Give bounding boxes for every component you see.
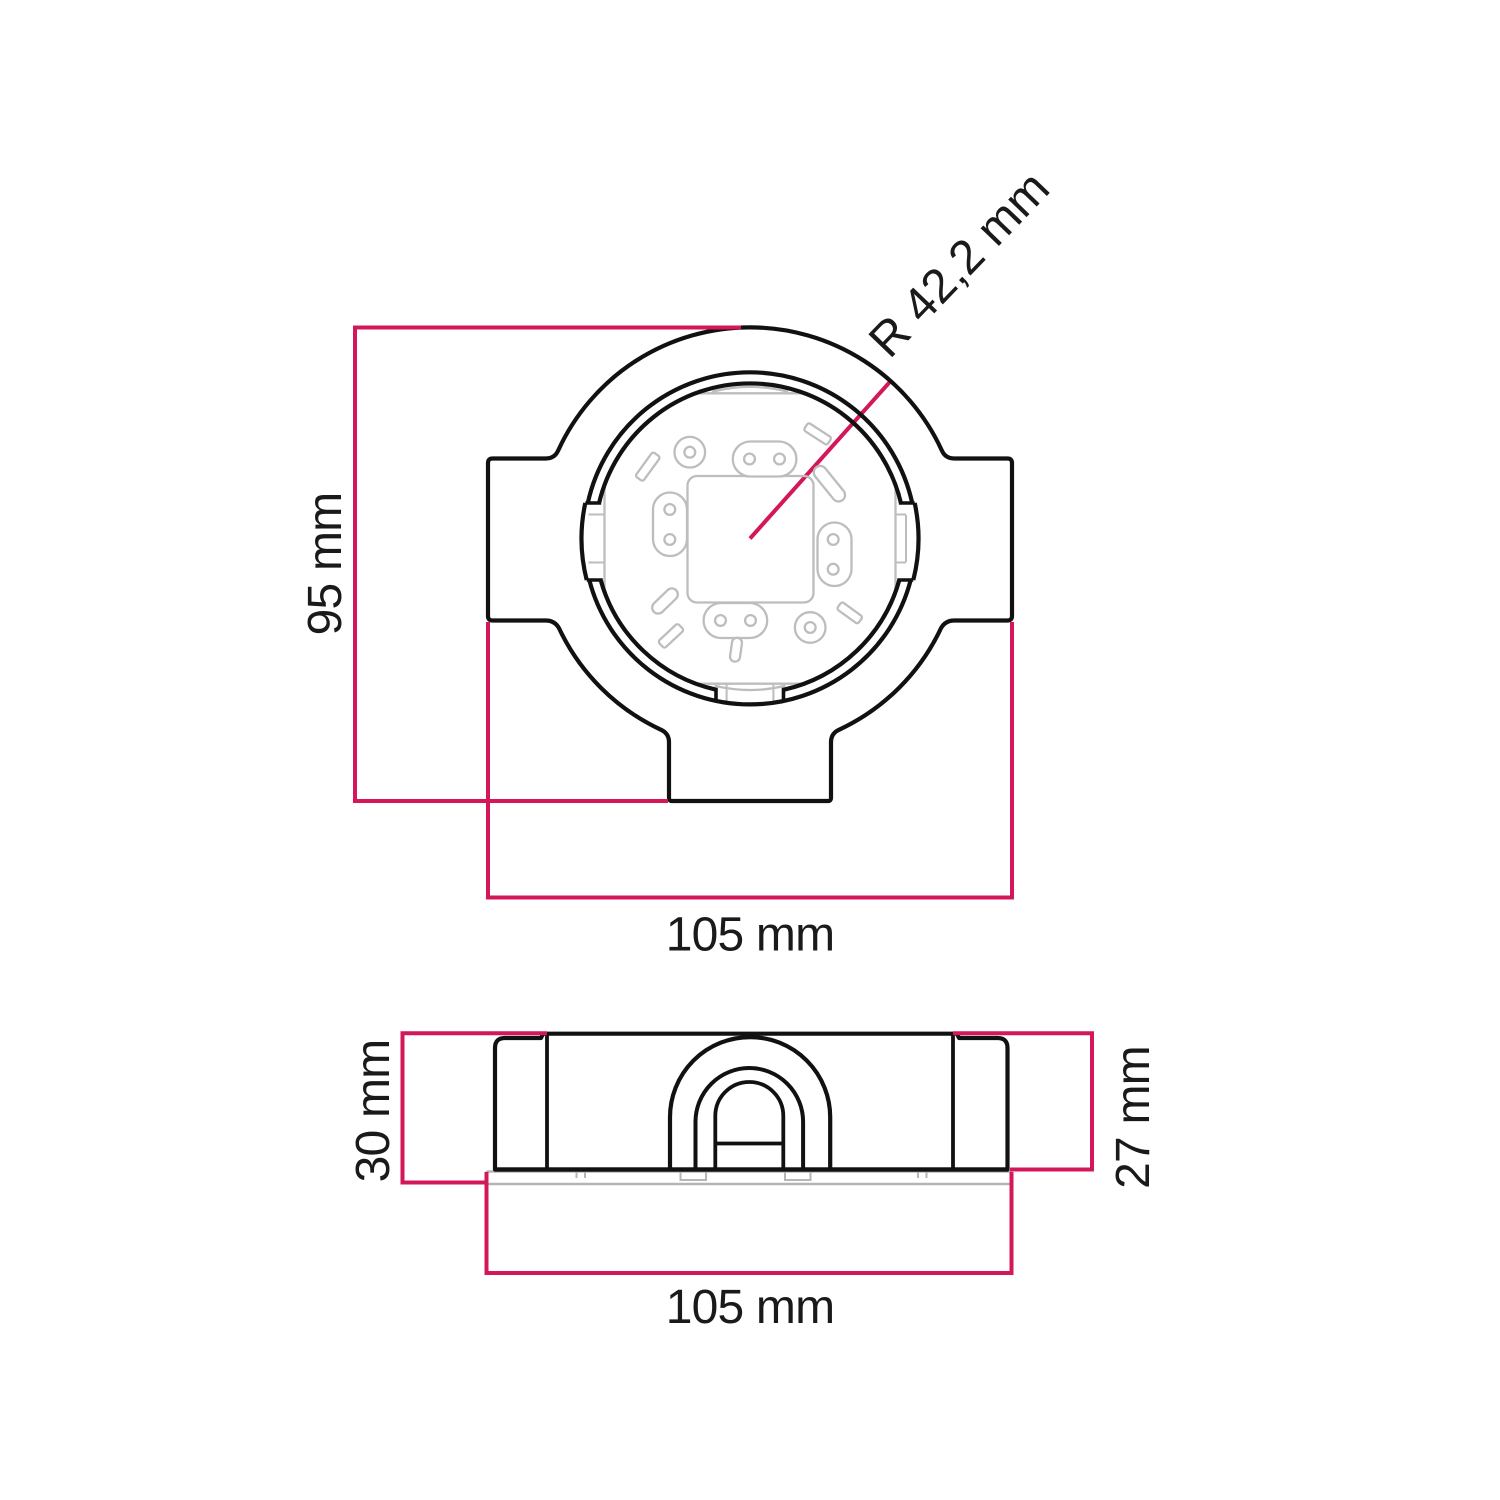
svg-text:27 mm: 27 mm: [1107, 1046, 1160, 1189]
svg-text:105 mm: 105 mm: [666, 1281, 835, 1334]
svg-text:105 mm: 105 mm: [666, 909, 835, 962]
svg-text:95 mm: 95 mm: [299, 493, 352, 636]
svg-text:30 mm: 30 mm: [347, 1040, 400, 1183]
